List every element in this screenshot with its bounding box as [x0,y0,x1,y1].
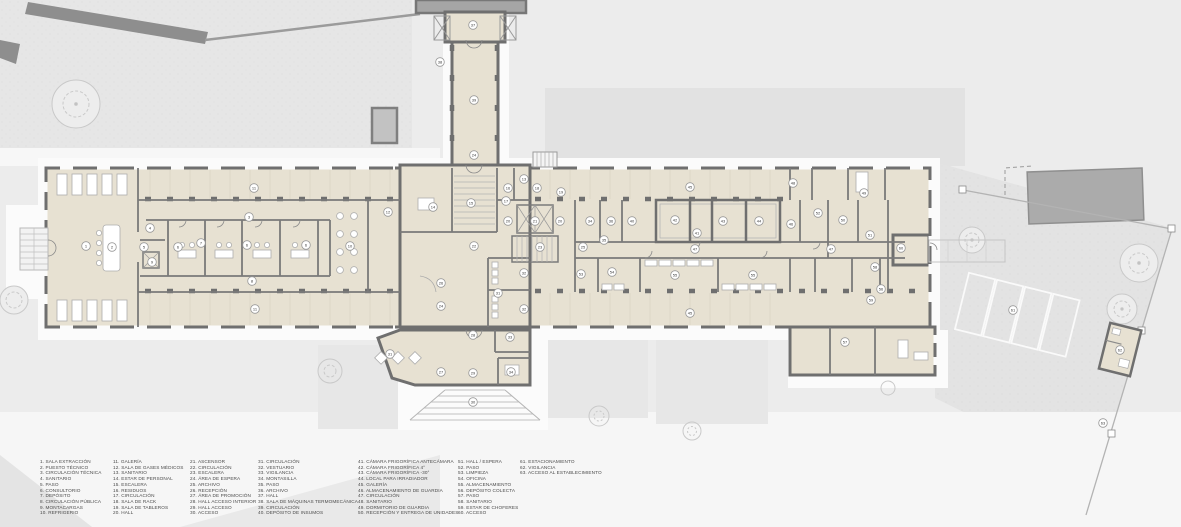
legend-item-20: 20. HALL [113,510,184,516]
svg-text:57: 57 [843,339,848,344]
neighbor-building-east [1027,168,1144,224]
svg-text:37: 37 [471,22,476,27]
small-outbuilding [372,108,397,143]
svg-text:20: 20 [506,218,511,223]
svg-text:52: 52 [816,210,821,215]
room-marker-17: 17 [502,197,511,206]
room-marker-3: 3 [245,213,254,222]
room-marker-57: 57 [841,338,850,347]
legend-item-10: 10. REFRIGERIO [40,510,102,516]
room-marker-9: 9 [148,258,157,267]
room-marker-1: 1 [82,242,91,251]
svg-text:28: 28 [471,332,476,337]
room-marker-47: 47 [827,245,836,254]
svg-text:45: 45 [688,184,693,189]
svg-text:32: 32 [522,270,527,275]
legend-column-1: 1. SALA EXTRACCIÓN2. PUESTO TÉCNICO3. CI… [40,459,102,516]
svg-text:19: 19 [559,189,564,194]
room-marker-15: 15 [467,199,476,208]
room-marker-61: 61 [1009,306,1018,315]
room-marker-36: 36 [607,217,616,226]
room-marker-20: 20 [556,217,565,226]
room-marker-24: 24 [437,302,446,311]
room-marker-39: 39 [470,96,479,105]
svg-text:50: 50 [841,217,846,222]
svg-text:39: 39 [472,97,477,102]
room-marker-26: 26 [437,279,446,288]
east-lower-block [790,327,935,375]
svg-text:21: 21 [533,218,538,223]
room-marker-47: 47 [691,245,700,254]
svg-text:48: 48 [791,180,796,185]
svg-text:55: 55 [673,272,678,277]
room-marker-45: 45 [686,183,695,192]
room-marker-46: 46 [787,220,796,229]
svg-text:27: 27 [439,369,444,374]
svg-text:49: 49 [862,190,867,195]
room-marker-51: 51 [866,231,875,240]
legend-column-2: 11. GALERÍA12. SALA DE GASES MÉDICOS13. … [113,459,184,516]
room-marker-56: 56 [877,285,886,294]
room-marker-2: 2 [108,243,117,252]
svg-text:58: 58 [873,264,878,269]
svg-text:42: 42 [673,217,678,222]
svg-text:15: 15 [469,200,474,205]
svg-text:54: 54 [610,269,615,274]
room-marker-22: 22 [470,242,479,251]
room-marker-18: 18 [533,184,542,193]
room-marker-52: 52 [814,209,823,218]
svg-text:51: 51 [868,232,873,237]
svg-text:55: 55 [751,272,756,277]
floor-plan-drawing: 1234596667810111112131415161718192021202… [0,0,1181,527]
legend-item-30: 30. ACCESO [190,510,256,516]
svg-text:29: 29 [471,370,476,375]
room-marker-42: 42 [671,216,680,225]
legend-item-14: 14. ESTAR DE PERSONAL [113,476,184,482]
legend-column-4: 31. CIRCULACIÓN32. VESTUARIO33. VIGILANC… [258,459,358,516]
svg-text:41: 41 [695,230,700,235]
svg-text:43: 43 [721,218,726,223]
room-marker-6: 6 [302,241,311,250]
room-marker-54: 54 [608,268,617,277]
room-marker-7: 7 [197,239,206,248]
room-marker-8: 8 [248,277,257,286]
svg-text:59: 59 [869,297,874,302]
svg-text:32: 32 [522,306,527,311]
svg-text:56: 56 [879,286,884,291]
room-legend: 1. SALA EXTRACCIÓN2. PUESTO TÉCNICO3. CI… [0,459,1181,524]
room-marker-60: 60 [897,244,906,253]
legend-item-63: 63. ACCESO AL ESTABLECIMIENTO [520,470,602,476]
side-exterior-stair [533,152,557,167]
legend-column-7: 61. ESTACIONAMIENTO62. VIGILANCIA63. ACC… [520,459,602,476]
svg-text:24: 24 [472,152,477,157]
legend-item-38: 38. SALA DE MÁQUINAS TERMOMECÁNICA [258,499,358,505]
svg-text:31: 31 [496,290,501,295]
room-marker-4: 4 [146,224,155,233]
legend-item-28: 28. HALL ACCESO INTERIOR [190,499,256,505]
svg-text:63: 63 [1101,420,1106,425]
svg-text:62: 62 [1118,347,1123,352]
legend-item-40: 40. DEPÓSITO DE INSUMOS [258,510,358,516]
room-marker-55: 55 [671,271,680,280]
room-marker-37: 37 [469,21,478,30]
room-marker-11: 11 [250,184,259,193]
svg-text:38: 38 [438,59,443,64]
svg-text:35: 35 [602,237,607,242]
svg-text:14: 14 [431,204,436,209]
legend-column-3: 21. ASCENSOR22. CIRCULACIÓN23. ESCALERA2… [190,459,256,516]
svg-text:24: 24 [439,303,444,308]
svg-text:20: 20 [558,218,563,223]
svg-text:36: 36 [609,218,614,223]
svg-text:12: 12 [386,209,391,214]
svg-text:34: 34 [509,369,514,374]
room-marker-34: 34 [507,368,516,377]
legend-column-5: 41. CÁMARA FRIGORÍFICA ANTECÁMARA42. CÁM… [358,459,459,516]
room-marker-24: 24 [470,151,479,160]
room-marker-21: 21 [531,217,540,226]
room-marker-31: 31 [386,350,395,359]
room-marker-11: 11 [251,305,260,314]
room-marker-25: 25 [579,243,588,252]
svg-text:10: 10 [348,243,353,248]
legend-item-8: 8. CIRCULACIÓN PÚBLICA [40,499,102,505]
room-marker-32: 32 [520,305,529,314]
room-marker-29: 29 [469,369,478,378]
room-marker-50: 50 [839,216,848,225]
legend-item-41: 41. CÁMARA FRIGORÍFICA ANTECÁMARA [358,459,459,465]
room-marker-63: 63 [1099,419,1108,428]
svg-text:61: 61 [1011,307,1016,312]
room-marker-20: 20 [504,217,513,226]
svg-text:22: 22 [472,243,477,248]
room-marker-49: 49 [860,189,869,198]
room-marker-31: 31 [494,289,503,298]
legend-item-60: 60. ACCESO [458,510,518,516]
room-marker-40: 40 [628,217,637,226]
legend-column-6: 51. HALL / ESPERA52. PASO53. LIMPIEZA54.… [458,459,518,516]
svg-text:30: 30 [471,399,476,404]
room-marker-53: 53 [577,270,586,279]
svg-text:18: 18 [535,185,540,190]
room-marker-10: 10 [346,242,355,251]
room-marker-6: 6 [243,241,252,250]
room-marker-13: 13 [520,175,529,184]
site-plan-canvas: 1234596667810111112131415161718192021202… [0,0,1181,527]
room-marker-34: 34 [586,217,595,226]
room-marker-27: 27 [437,368,446,377]
room-marker-12: 12 [384,208,393,217]
room-marker-5: 5 [140,243,149,252]
room-marker-28: 28 [469,331,478,340]
room-marker-45: 45 [686,309,695,318]
svg-text:46: 46 [789,221,794,226]
svg-text:23: 23 [538,244,543,249]
svg-text:26: 26 [439,280,444,285]
room-marker-43: 43 [719,217,728,226]
room-marker-59: 59 [867,296,876,305]
svg-text:17: 17 [504,198,509,203]
room-marker-48: 48 [789,179,798,188]
room-marker-14: 14 [429,203,438,212]
svg-text:16: 16 [506,185,511,190]
legend-item-55: 55. ALMACENAMIENTO [458,482,518,488]
svg-text:25: 25 [581,244,586,249]
room-marker-41: 41 [693,229,702,238]
room-marker-16: 16 [504,184,513,193]
room-marker-19: 19 [557,188,566,197]
room-marker-33: 33 [506,333,515,342]
svg-text:47: 47 [693,246,698,251]
room-marker-38: 38 [436,58,445,67]
room-marker-23: 23 [536,243,545,252]
svg-text:53: 53 [579,271,584,276]
room-marker-6: 6 [174,243,183,252]
west-exterior-stair [20,228,48,270]
svg-text:47: 47 [829,246,834,251]
svg-text:33: 33 [508,334,513,339]
room-marker-30: 30 [469,398,478,407]
room-marker-35: 35 [600,236,609,245]
svg-text:45: 45 [688,310,693,315]
room-marker-58: 58 [871,263,880,272]
svg-text:44: 44 [757,218,762,223]
svg-text:60: 60 [899,245,904,250]
room-marker-44: 44 [755,217,764,226]
room-marker-62: 62 [1116,346,1125,355]
svg-text:34: 34 [588,218,593,223]
svg-text:40: 40 [630,218,635,223]
svg-text:13: 13 [522,176,527,181]
svg-text:31: 31 [388,351,393,356]
room-marker-32: 32 [520,269,529,278]
legend-item-50: 50. RECEPCIÓN Y ENTREGA DE UNIDADES [358,510,459,516]
room-marker-55: 55 [749,271,758,280]
